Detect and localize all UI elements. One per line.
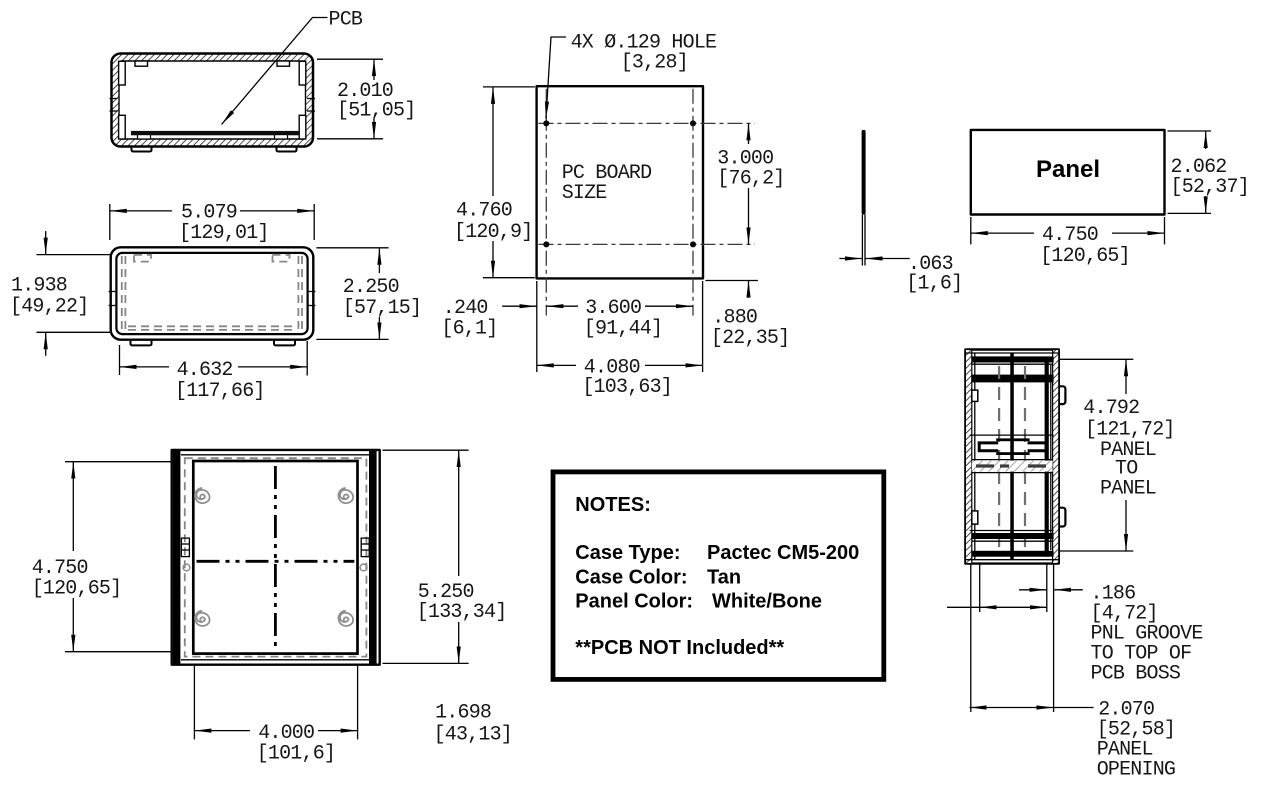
svg-text:[133,34]: [133,34] — [417, 601, 507, 624]
svg-text:SIZE: SIZE — [562, 182, 607, 205]
svg-text:[22,35]: [22,35] — [711, 327, 789, 350]
svg-text:[76,2]: [76,2] — [717, 168, 784, 191]
svg-text:**PCB NOT Included**: **PCB NOT Included** — [575, 637, 784, 659]
svg-text:[120,65]: [120,65] — [1040, 245, 1130, 268]
svg-text:[3,28]: [3,28] — [621, 52, 688, 75]
svg-text:[52,37]: [52,37] — [1171, 176, 1249, 199]
svg-text:NOTES:: NOTES: — [575, 494, 651, 516]
svg-text:[6,1]: [6,1] — [441, 318, 497, 341]
svg-text:1.698: 1.698 — [435, 702, 491, 725]
svg-text:[49,22]: [49,22] — [10, 296, 88, 319]
svg-text:PCB: PCB — [329, 9, 363, 32]
svg-text:Case Color:Tan: Case Color:Tan — [575, 566, 741, 588]
svg-text:PANEL: PANEL — [1100, 478, 1156, 501]
svg-text:[101,6]: [101,6] — [257, 743, 335, 766]
svg-text:[117,66]: [117,66] — [175, 380, 265, 403]
svg-text:[103,63]: [103,63] — [582, 376, 672, 399]
svg-text:4.760: 4.760 — [456, 200, 512, 223]
svg-text:4.792: 4.792 — [1083, 397, 1139, 420]
svg-text:[120,65]: [120,65] — [32, 578, 122, 601]
svg-text:[57,15]: [57,15] — [343, 297, 421, 320]
svg-text:4.632: 4.632 — [177, 359, 233, 382]
svg-text:PCB BOSS: PCB BOSS — [1091, 663, 1181, 686]
svg-text:[1,6]: [1,6] — [906, 273, 962, 296]
svg-text:[91,44]: [91,44] — [584, 318, 662, 341]
svg-text:[120,9]: [120,9] — [454, 221, 532, 244]
svg-text:Case Type:Pactec CM5-200: Case Type:Pactec CM5-200 — [575, 542, 859, 564]
svg-text:[43,13]: [43,13] — [434, 724, 512, 747]
svg-text:OPENING: OPENING — [1097, 759, 1175, 782]
svg-text:4.750: 4.750 — [1042, 224, 1098, 247]
svg-text:[51,05]: [51,05] — [337, 100, 415, 123]
svg-text:Panel: Panel — [1036, 156, 1100, 183]
svg-text:[129,01]: [129,01] — [179, 222, 269, 245]
svg-text:2.250: 2.250 — [343, 276, 399, 299]
svg-text:1.938: 1.938 — [11, 275, 67, 298]
